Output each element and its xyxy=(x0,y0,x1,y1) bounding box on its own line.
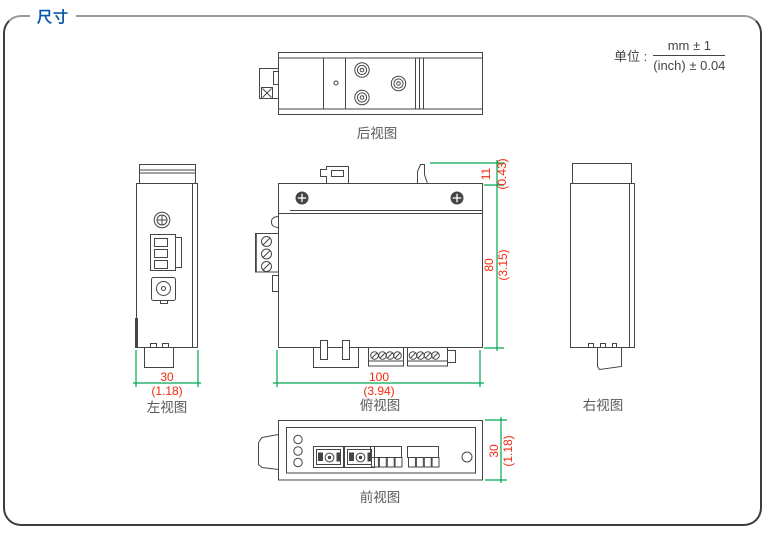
rear-screws xyxy=(355,63,406,105)
right-view-label: 右视图 xyxy=(583,394,624,414)
front-ground-screw xyxy=(462,452,472,462)
front-sc-ports xyxy=(314,447,375,468)
top-terminal-blocks xyxy=(369,348,456,367)
front-leds xyxy=(294,435,302,466)
dim-clip-height-mm: 11 xyxy=(479,168,493,180)
top-view-drawing xyxy=(256,165,483,368)
dimension-drawing-page: 尺寸 单位 : mm ± 1 (inch) ± 0.04 xyxy=(0,0,770,536)
rear-side-connector xyxy=(260,69,279,99)
dim-top-height-mm: 80 xyxy=(482,258,496,271)
rear-view-label: 后视图 xyxy=(357,122,398,142)
rear-view-drawing xyxy=(260,53,483,115)
front-view-drawing xyxy=(259,421,483,481)
front-terminal-blocks xyxy=(371,447,440,468)
dim-left-width-mm: 30 xyxy=(160,370,173,384)
line-art xyxy=(0,0,770,536)
top-left-terminal xyxy=(256,234,279,292)
left-view-drawing xyxy=(135,165,198,368)
dim-front-height-inch: (1.18) xyxy=(501,435,515,466)
dim-top-height-inch: (3.15) xyxy=(496,249,510,280)
left-screw xyxy=(154,212,170,228)
dimension-lines xyxy=(133,160,507,483)
dim-top-width-mm: 100 xyxy=(369,370,389,384)
right-view-drawing xyxy=(571,164,635,370)
dim-left-width-inch: (1.18) xyxy=(151,384,182,398)
left-terminal-block xyxy=(151,235,182,271)
top-plate-screws xyxy=(296,192,464,205)
left-view-label: 左视图 xyxy=(147,396,188,416)
dim-front-height-mm: 30 xyxy=(487,444,501,457)
din-rail-clip xyxy=(321,165,428,184)
left-dc-jack xyxy=(152,278,176,304)
front-view-label: 前视图 xyxy=(360,486,401,506)
top-fiber-connector xyxy=(314,341,359,368)
dim-top-width-inch: (3.94) xyxy=(363,384,394,398)
dim-clip-height-inch: (0.43) xyxy=(495,158,509,189)
